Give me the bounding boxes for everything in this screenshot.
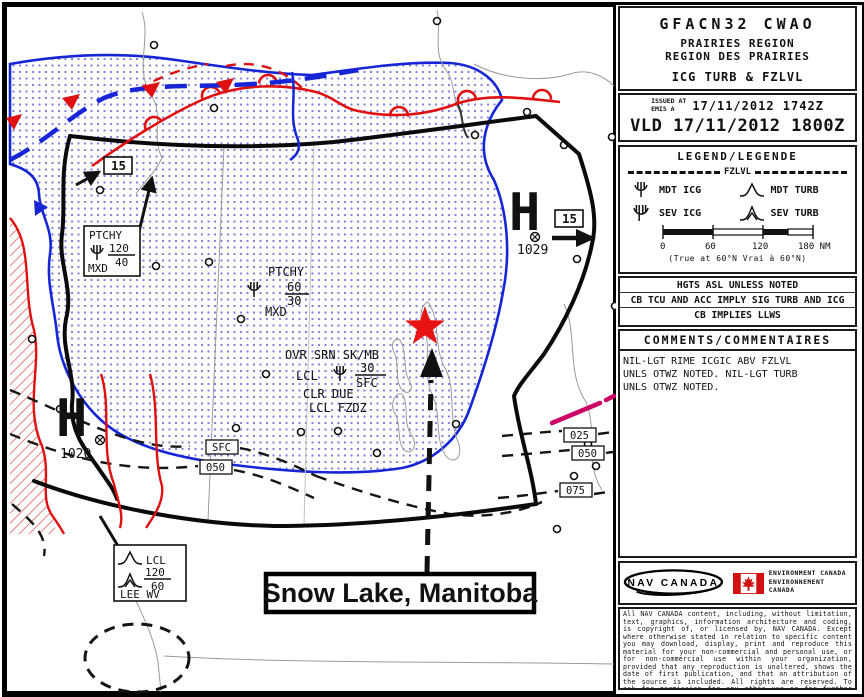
svg-text:15: 15 <box>562 211 577 226</box>
svg-text:180 NM: 180 NM <box>798 242 831 250</box>
copyright-block: All NAV CANADA content, including, witho… <box>618 607 857 690</box>
legend-sev-icg: SEV ICG <box>628 203 738 223</box>
canada-flag-icon <box>733 573 764 594</box>
sev-icg-icon <box>628 203 654 223</box>
logos-block: NAV CANADA ENVIRONMENT CANADA ENVIRONNEM… <box>618 561 857 605</box>
svg-text:NAV CANADA: NAV CANADA <box>627 578 719 589</box>
legend-mdt-icg: MDT ICG <box>628 180 738 200</box>
svg-text:CLR DUE: CLR DUE <box>303 387 354 401</box>
note-line: CB IMPLIES LLWS <box>620 308 855 322</box>
svg-text:60: 60 <box>705 242 716 250</box>
copyright-text: All NAV CANADA content, including, witho… <box>623 611 852 690</box>
sev-turb-icon <box>738 204 766 222</box>
svg-text:H: H <box>509 183 540 243</box>
svg-text:SFC: SFC <box>212 442 231 454</box>
note-line: CB TCU AND ACC IMPLY SIG TURB AND ICG <box>620 293 855 308</box>
svg-text:SFC: SFC <box>356 376 378 390</box>
distance-scale: 0 60 120 180 NM <box>628 224 847 254</box>
svg-text:30: 30 <box>360 361 374 375</box>
standard-notes-block: HGTS ASL UNLESS NOTED CB TCU AND ACC IMP… <box>618 276 857 327</box>
note-line: HGTS ASL UNLESS NOTED <box>620 278 855 293</box>
svg-text:H: H <box>56 389 87 449</box>
comments-title: COMMENTS/COMMENTAIRES <box>620 331 855 351</box>
comments-text: NIL-LGT RIME ICGIC ABV FZLVL UNLS OTWZ N… <box>620 351 855 398</box>
svg-text:050: 050 <box>206 462 225 474</box>
scale-note: (True at 60°N Vrai à 60°N) <box>628 254 847 263</box>
svg-text:120: 120 <box>145 566 165 579</box>
legend-sev-turb: SEV TURB <box>738 203 848 223</box>
svg-text:120: 120 <box>752 242 768 250</box>
gfa-chart-page: 15 PTCHY 120 40 MXD PTCHY 60 30 MXD OVR … <box>0 0 864 696</box>
valid-time: VLD 17/11/2012 1800Z <box>626 116 849 136</box>
fzlvl-dash-right <box>755 171 847 174</box>
fzlvl-legend-row: FZLVL <box>628 167 847 177</box>
issued-label: ISSUED AT EMIS A <box>651 98 686 114</box>
svg-text:1029: 1029 <box>517 243 548 258</box>
snow-lake-label: Snow Lake, Manitoba <box>263 578 539 608</box>
svg-text:0: 0 <box>660 242 665 250</box>
comments-block: COMMENTS/COMMENTAIRES NIL-LGT RIME ICGIC… <box>618 329 857 558</box>
scale-bar: 0 60 120 180 NM <box>638 224 838 250</box>
fzlvl-dash-left <box>628 171 720 174</box>
ptchy-icing-box-west: PTCHY 120 40 MXD <box>84 226 140 276</box>
svg-text:PTCHY: PTCHY <box>268 265 305 279</box>
svg-text:30: 30 <box>287 294 301 308</box>
fzlvl-label: FZLVL <box>724 167 751 177</box>
svg-text:15: 15 <box>111 158 126 173</box>
svg-text:075: 075 <box>566 485 585 497</box>
svg-text:LEE WV: LEE WV <box>120 588 160 601</box>
product-name: ICG TURB & FZLVL <box>620 70 855 84</box>
svg-text:OVR SRN SK/MB: OVR SRN SK/MB <box>285 348 379 362</box>
gfa-map: 15 PTCHY 120 40 MXD PTCHY 60 30 MXD OVR … <box>4 4 616 694</box>
svg-text:050: 050 <box>578 448 597 460</box>
region-name-en: PRAIRIES REGION <box>620 37 855 50</box>
legend-mdt-turb: MDT TURB <box>738 180 848 200</box>
svg-text:MXD: MXD <box>265 305 287 319</box>
issue-valid-block: ISSUED AT EMIS A 17/11/2012 1742Z VLD 17… <box>618 93 857 142</box>
svg-text:1020: 1020 <box>60 447 91 462</box>
issued-time: 17/11/2012 1742Z <box>692 99 824 113</box>
environment-canada-fr: ENVIRONNEMENT CANADA <box>769 579 852 596</box>
svg-text:PTCHY: PTCHY <box>89 229 122 242</box>
svg-text:LCL: LCL <box>296 369 318 383</box>
chart-id: GFACN32 CWAO <box>620 15 855 33</box>
mdt-icg-icon <box>628 180 654 200</box>
svg-text:025: 025 <box>570 430 589 442</box>
legend-block: LEGEND/LEGENDE FZLVL MDT ICG MDT TURB SE… <box>618 145 857 274</box>
svg-text:120: 120 <box>109 242 129 255</box>
svg-text:40: 40 <box>115 256 128 269</box>
svg-text:MXD: MXD <box>88 262 108 275</box>
legend-title: LEGEND/LEGENDE <box>628 150 847 163</box>
nav-canada-logo: NAV CANADA <box>623 566 728 600</box>
chart-title-block: GFACN32 CWAO PRAIRIES REGION REGION DES … <box>618 6 857 91</box>
svg-text:60: 60 <box>287 280 301 294</box>
region-name-fr: REGION DES PRAIRIES <box>620 50 855 63</box>
mdt-turb-icon <box>738 181 766 199</box>
environment-canada-en: ENVIRONMENT CANADA <box>769 570 852 579</box>
svg-text:LCL FZDZ: LCL FZDZ <box>309 401 367 415</box>
